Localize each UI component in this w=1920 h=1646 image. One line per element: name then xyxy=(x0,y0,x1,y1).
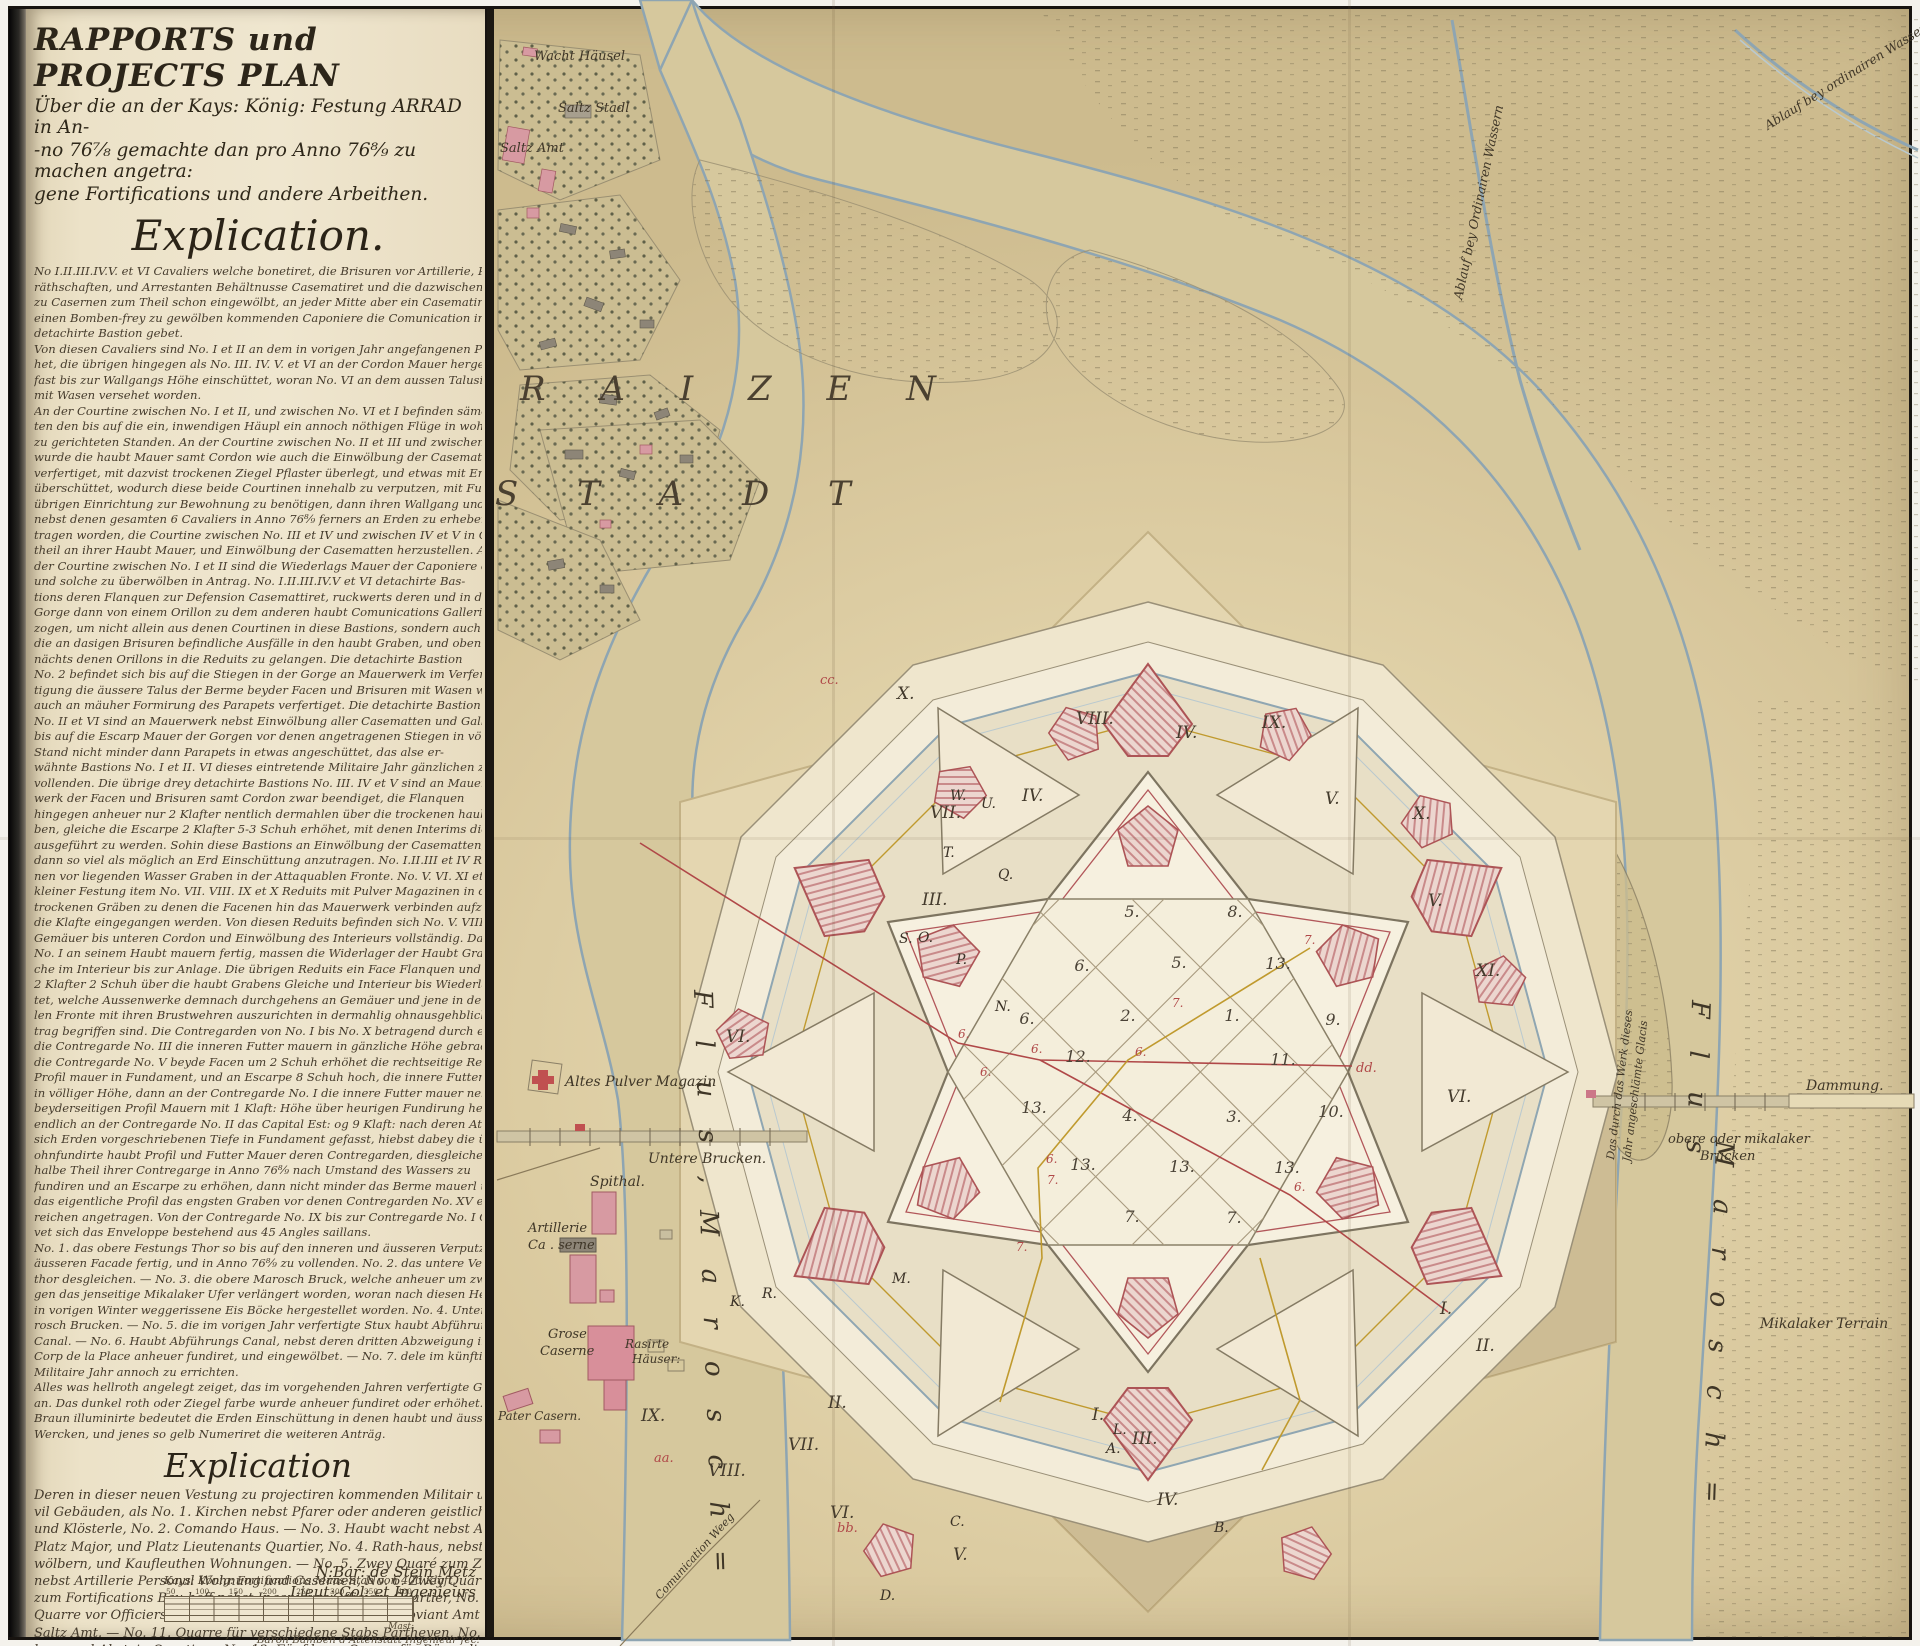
svg-text:C.: C. xyxy=(950,1514,965,1530)
svg-text:1.: 1. xyxy=(1224,1006,1239,1025)
manuscript-line: äusseren Facade fertig, und in Anno 76⁸⁄… xyxy=(34,1256,482,1272)
manuscript-line: ten den bis auf die ein, inwendigen Häup… xyxy=(34,419,482,435)
manuscript-line: No I.II.III.IV.V. et VI Cavaliers welche… xyxy=(34,264,482,280)
manuscript-line: No. I an seinem Haubt mauern fertig, mas… xyxy=(34,946,482,962)
svg-text:Q.: Q. xyxy=(998,867,1013,883)
svg-text:VI.: VI. xyxy=(726,1027,750,1047)
svg-text:Grose: Grose xyxy=(548,1327,587,1342)
manuscript-line: zu gerichteten Standen. An der Courtine … xyxy=(34,435,482,451)
svg-text:X.: X. xyxy=(895,684,915,704)
manuscript-line: nen vor liegenden Wasser Graben in der A… xyxy=(34,869,482,885)
manuscript-line: kleiner Festung item No. VII. VIII. IX e… xyxy=(34,884,482,900)
manuscript-line: beyderseitigen Profil Mauern mit 1 Klaft… xyxy=(34,1101,482,1117)
svg-text:Rasirte: Rasirte xyxy=(624,1337,669,1351)
svg-text:T.: T. xyxy=(943,845,955,861)
svg-text:6.: 6. xyxy=(980,1065,991,1079)
manuscript-line: zogen, um nicht allein aus denen Courtin… xyxy=(34,621,482,637)
svg-text:5.: 5. xyxy=(1124,902,1139,921)
manuscript-line: Alles was hellroth angelegt zeiget, das … xyxy=(34,1380,482,1396)
manuscript-line: zu Casernen zum Theil schon eingewölbt, … xyxy=(34,295,482,311)
manuscript-line: Gemäuer bis unteren Cordon und Einwölbun… xyxy=(34,931,482,947)
svg-text:IX.: IX. xyxy=(1261,713,1286,733)
svg-text:IX.: IX. xyxy=(640,1406,665,1426)
svg-text:7.: 7. xyxy=(1172,996,1183,1010)
manuscript-line: No. 1. das obere Festungs Thor so bis au… xyxy=(34,1241,482,1257)
manuscript-line: ohnfundirte haubt Profil und Futter Maue… xyxy=(34,1148,482,1164)
manuscript-line: werk der Facen und Brisuren samt Cordon … xyxy=(34,791,482,807)
svg-text:6.: 6. xyxy=(958,1027,969,1041)
svg-text:M.: M. xyxy=(891,1271,911,1287)
svg-text:cc.: cc. xyxy=(820,673,839,688)
svg-text:Untere Brucken.: Untere Brucken. xyxy=(648,1151,766,1167)
manuscript-line: in völliger Höhe, dann an der Contregard… xyxy=(34,1086,482,1102)
svg-text:13.: 13. xyxy=(1070,1155,1095,1174)
manuscript-line: Profil mauer in Fundament, und an Escarp… xyxy=(34,1070,482,1086)
manuscript-line: nebst denen gesamten 6 Cavaliers in Anno… xyxy=(34,512,482,528)
manuscript-line: vollenden. Die übrige drey detachirte Ba… xyxy=(34,776,482,792)
manuscript-line: das eigentliche Profil das engsten Grabe… xyxy=(34,1194,482,1210)
manuscript-line: die an dasigen Brisuren befindliche Ausf… xyxy=(34,636,482,652)
svg-text:8.: 8. xyxy=(1227,902,1242,921)
svg-text:X.: X. xyxy=(1411,804,1431,824)
manuscript-line: Militaire Jahr annoch zu errichten. xyxy=(34,1365,482,1381)
manuscript-line: vil Gebäuden, als No. 1. Kirchen nebst P… xyxy=(34,1504,482,1521)
credit-line: Baron Bamben d'Attenstatt Ingenieur fec: xyxy=(257,1634,480,1646)
manuscript-line: Gorge dann von einem Orillon zu dem ande… xyxy=(34,605,482,621)
svg-text:A.: A. xyxy=(1104,1441,1121,1457)
svg-text:Häuser:: Häuser: xyxy=(631,1352,680,1366)
svg-text:V.: V. xyxy=(1325,789,1340,809)
manuscript-line: No. 2 befindet sich bis auf die Stiegen … xyxy=(34,667,482,683)
map-sheet: X. VIII. IV. IX. IV. VII. V. X. V. XI. V… xyxy=(0,0,1920,1646)
manuscript-line: 350 xyxy=(364,1587,378,1596)
svg-text:Wacht Häusel: Wacht Häusel xyxy=(534,49,625,64)
manuscript-content: RAPPORTS und PROJECTS PLAN Über die an d… xyxy=(34,22,482,1630)
svg-text:Saltz Amt: Saltz Amt xyxy=(500,141,565,156)
manuscript-line: Corp de la Place anheuer fundiret, und e… xyxy=(34,1349,482,1365)
manuscript-line: Canal. — No. 6. Haubt Abführungs Canal, … xyxy=(34,1334,482,1350)
manuscript-line: tigung die äussere Talus der Berme beyde… xyxy=(34,683,482,699)
manuscript-line: in vorigen Winter weggerissene Eis Böcke… xyxy=(34,1303,482,1319)
svg-text:10.: 10. xyxy=(1318,1102,1343,1121)
svg-text:VIII.: VIII. xyxy=(1076,709,1114,729)
svg-text:13.: 13. xyxy=(1274,1158,1299,1177)
svg-text:7.: 7. xyxy=(1226,1208,1241,1227)
manuscript-line: nächts denen Orillons in die Reduits zu … xyxy=(34,652,482,668)
svg-text:3.: 3. xyxy=(1226,1107,1241,1126)
svg-text:Mikalaker Terrain: Mikalaker Terrain xyxy=(1759,1316,1888,1332)
svg-text:6.: 6. xyxy=(1019,1009,1034,1028)
svg-text:V.: V. xyxy=(953,1545,968,1565)
explication-heading: Explication. xyxy=(34,211,482,260)
svg-text:6.: 6. xyxy=(1046,1152,1057,1166)
svg-text:XI.: XI. xyxy=(1474,961,1500,981)
scale-title: Kays: König: Fortifications Maas-Stab vo… xyxy=(164,1574,414,1587)
svg-text:I.: I. xyxy=(1439,1299,1452,1319)
manuscript-line: len Fronte mit ihren Brustwehren auszuri… xyxy=(34,1008,482,1024)
map-title-line3: -no 76⁷⁄₈ gemachte dan pro Anno 76⁸⁄₉ zu… xyxy=(34,140,482,182)
manuscript-line: räthschaften, und Arrestanten Behältnuss… xyxy=(34,280,482,296)
manuscript-line: thor desgleichen. — No. 3. die obere Mar… xyxy=(34,1272,482,1288)
svg-text:IV.: IV. xyxy=(1175,723,1197,743)
manuscript-line: auch an mäuher Formirung des Parapets ve… xyxy=(34,698,482,714)
svg-text:4.: 4. xyxy=(1121,1106,1137,1125)
svg-text:VI.: VI. xyxy=(830,1503,854,1523)
svg-text:III.: III. xyxy=(921,890,948,910)
svg-text:5.: 5. xyxy=(1171,953,1186,972)
manuscript-line: überschüttet, wodurch diese beide Courti… xyxy=(34,481,482,497)
svg-text:IV.: IV. xyxy=(1021,786,1043,806)
manuscript-line: Stand nicht minder dann Parapets in etwa… xyxy=(34,745,482,761)
manuscript-line: Platz Major, und Platz Lieutenants Quart… xyxy=(34,1539,482,1556)
manuscript-line: theil an ihrer Haubt Mauer, und Einwölbu… xyxy=(34,543,482,559)
svg-text:L.: L. xyxy=(1112,1422,1127,1438)
map-title-line1: RAPPORTS und PROJECTS PLAN xyxy=(34,22,482,94)
svg-text:11.: 11. xyxy=(1270,1050,1295,1069)
svg-text:Caserne: Caserne xyxy=(540,1344,595,1359)
svg-text:Spithal.: Spithal. xyxy=(590,1174,645,1190)
manuscript-line: 50 xyxy=(166,1587,176,1596)
svg-text:VII.: VII. xyxy=(930,803,961,823)
svg-text:2.: 2. xyxy=(1119,1006,1135,1025)
manuscript-line: endlich an der Contregarde No. II das Ca… xyxy=(34,1117,482,1133)
manuscript-line: Deren in dieser neuen Vestung zu project… xyxy=(34,1487,482,1504)
manuscript-line: tions deren Flanquen zur Defension Casem… xyxy=(34,590,482,606)
manuscript-line: und solche zu überwölben in Antrag. No. … xyxy=(34,574,482,590)
manuscript-line: rosch Brucken. — No. 5. die im vorigen J… xyxy=(34,1318,482,1334)
svg-text:U.: U. xyxy=(981,796,996,812)
manuscript-line: gen das jenseitige Mikalaker Ufer verlän… xyxy=(34,1287,482,1303)
manuscript-line: 2 Klafter 2 Schuh über die haubt Grabens… xyxy=(34,977,482,993)
scale-bar: Kays: König: Fortifications Maas-Stab vo… xyxy=(164,1574,414,1632)
svg-text:O.: O. xyxy=(918,930,933,946)
manuscript-line: trag begriffen sind. Die Contregarden vo… xyxy=(34,1024,482,1040)
svg-text:II.: II. xyxy=(1475,1336,1495,1356)
manuscript-line: 300 xyxy=(330,1587,344,1596)
scale-bar-grid xyxy=(164,1596,414,1622)
manuscript-line: No. II et VI sind an Mauerwerk nebst Ein… xyxy=(34,714,482,730)
manuscript-line: che im Interieur bis zur Anlage. Die übr… xyxy=(34,962,482,978)
map-title-line2: Über die an der Kays: König: Festung ARR… xyxy=(34,96,482,138)
svg-text:6.: 6. xyxy=(1074,956,1089,975)
svg-text:VI.: VI. xyxy=(1447,1087,1471,1107)
svg-text:III.: III. xyxy=(1131,1429,1158,1449)
svg-text:bb.: bb. xyxy=(837,1521,858,1536)
manuscript-line: tragen worden, die Courtine zwischen No.… xyxy=(34,528,482,544)
svg-text:P.: P. xyxy=(955,952,967,968)
svg-text:Artillerie: Artillerie xyxy=(527,1221,587,1236)
svg-text:obere oder mikalaker: obere oder mikalaker xyxy=(1668,1132,1811,1147)
svg-text:dd.: dd. xyxy=(1356,1061,1377,1076)
svg-text:S.: S. xyxy=(899,931,913,947)
svg-text:12.: 12. xyxy=(1065,1047,1090,1066)
manuscript-line: dann so viel als möglich an Erd Einschüt… xyxy=(34,853,482,869)
manuscript-line: 200 xyxy=(263,1587,277,1596)
manuscript-line: fast bis zur Wallgangs Höhe einschüttet,… xyxy=(34,373,482,389)
svg-text:9.: 9. xyxy=(1325,1010,1340,1029)
sheet-left-edge xyxy=(9,9,27,1637)
manuscript-line: der Courtine zwischen No. I et II sind d… xyxy=(34,559,482,575)
svg-text:aa.: aa. xyxy=(654,1451,674,1466)
svg-text:VII.: VII. xyxy=(788,1435,819,1455)
manuscript-line: an. Das dunkel roth oder Ziegel farbe wu… xyxy=(34,1396,482,1412)
manuscript-line: tet, welche Aussenwerke demnach durchgeh… xyxy=(34,993,482,1009)
svg-text:7.: 7. xyxy=(1016,1240,1027,1254)
svg-text:S T A D T: S T A D T xyxy=(495,474,875,514)
manuscript-line: und Klösterle, No. 2. Comando Haus. — No… xyxy=(34,1521,482,1538)
panel-divider xyxy=(487,9,494,1637)
svg-text:R A I Z E N: R A I Z E N xyxy=(519,369,958,409)
manuscript-line: bis auf die Escarp Mauer der Gorgen vor … xyxy=(34,729,482,745)
manuscript-line: Von diesen Cavaliers sind No. I et II an… xyxy=(34,342,482,358)
svg-text:Dammung.: Dammung. xyxy=(1805,1078,1884,1094)
svg-text:Altes Pulver Magazin: Altes Pulver Magazin xyxy=(563,1074,716,1090)
svg-text:I.: I. xyxy=(1091,1405,1104,1425)
manuscript-line: 250 xyxy=(296,1587,310,1596)
manuscript-line: ausgeführt zu werden. Sohin diese Bastio… xyxy=(34,838,482,854)
manuscript-line: mit Wasen versehet worden. xyxy=(34,388,482,404)
scale-ticks: 50100150200250300350400 xyxy=(164,1587,414,1596)
svg-text:W.: W. xyxy=(950,788,966,804)
explication-body: No I.II.III.IV.V. et VI Cavaliers welche… xyxy=(34,264,482,1442)
manuscript-line: 100 xyxy=(195,1587,209,1596)
svg-text:D.: D. xyxy=(879,1588,895,1604)
svg-text:6.: 6. xyxy=(1135,1045,1146,1059)
manuscript-line: die Contregarde No. III die inneren Futt… xyxy=(34,1039,482,1055)
manuscript-line: einen Bomben-frey zu gewölben kommenden … xyxy=(34,311,482,327)
svg-text:R.: R. xyxy=(761,1286,777,1302)
manuscript-line: übrigen Einrichtung zur Bewohnung zu ben… xyxy=(34,497,482,513)
svg-text:7.: 7. xyxy=(1304,933,1315,947)
svg-text:B.: B. xyxy=(1213,1520,1229,1536)
manuscript-line: 150 xyxy=(229,1587,243,1596)
manuscript-line: reichen angetragen. Von der Contregarde … xyxy=(34,1210,482,1226)
manuscript-line: ben, gleiche die Escarpe 2 Klafter 5-3 S… xyxy=(34,822,482,838)
svg-text:N.: N. xyxy=(994,999,1011,1015)
svg-text:13.: 13. xyxy=(1265,954,1290,973)
manuscript-line: Braun illuminirte bedeutet die Erden Ein… xyxy=(34,1411,482,1427)
manuscript-line: hingegen anheuer nur 2 Klafter nentlich … xyxy=(34,807,482,823)
manuscript-line: die Contregarde No. V beyde Facen um 2 S… xyxy=(34,1055,482,1071)
svg-text:7.: 7. xyxy=(1124,1207,1139,1226)
svg-text:IV.: IV. xyxy=(1156,1490,1178,1510)
manuscript-line: wähnte Bastions No. I et II. VI dieses e… xyxy=(34,760,482,776)
manuscript-line: An der Courtine zwischen No. I et II, un… xyxy=(34,404,482,420)
svg-text:6.: 6. xyxy=(1031,1042,1042,1056)
manuscript-line: fundiren und an Escarpe zu erhöhen, dann… xyxy=(34,1179,482,1195)
manuscript-line: sich Erden vorgeschriebenen Tiefe in Fun… xyxy=(34,1132,482,1148)
svg-text:K.: K. xyxy=(729,1294,745,1310)
manuscript-line: verfertiget, mit dazvist trockenen Ziege… xyxy=(34,466,482,482)
svg-text:6.: 6. xyxy=(1294,1180,1305,1194)
svg-text:13.: 13. xyxy=(1169,1157,1194,1176)
svg-text:V.: V. xyxy=(1428,891,1443,911)
map-title-line4: gene Fortifications und andere Arbeithen… xyxy=(34,184,482,205)
explication2-heading: Explication xyxy=(34,1446,482,1485)
svg-text:Ca . serne: Ca . serne xyxy=(528,1238,595,1253)
manuscript-line: wurde die haubt Mauer samt Cordon wie au… xyxy=(34,450,482,466)
svg-text:Brucken: Brucken xyxy=(1699,1149,1755,1164)
manuscript-line: trockenen Gräben zu denen die Facenen hi… xyxy=(34,900,482,916)
svg-text:13.: 13. xyxy=(1021,1098,1046,1117)
manuscript-line: het, die übrigen hingegen als No. III. I… xyxy=(34,357,482,373)
svg-text:II.: II. xyxy=(827,1393,847,1413)
manuscript-line: 400 xyxy=(398,1587,412,1596)
manuscript-line: Wercken, und jenes so gelb Numeriret die… xyxy=(34,1427,482,1443)
manuscript-line: vet sich das Enveloppe bestehend aus 45 … xyxy=(34,1225,482,1241)
manuscript-line: die Klafte eingegangen werden. Von diese… xyxy=(34,915,482,931)
svg-text:Saltz Stadl: Saltz Stadl xyxy=(558,101,629,116)
manuscript-line: detachirte Bastion gebet. xyxy=(34,326,482,342)
scale-end-label: Mast: xyxy=(164,1622,414,1632)
svg-text:Pater Casern.: Pater Casern. xyxy=(497,1409,581,1423)
manuscript-line: halbe Theil ihrer Contregarge in Anno 76… xyxy=(34,1163,482,1179)
svg-text:7.: 7. xyxy=(1047,1173,1058,1187)
